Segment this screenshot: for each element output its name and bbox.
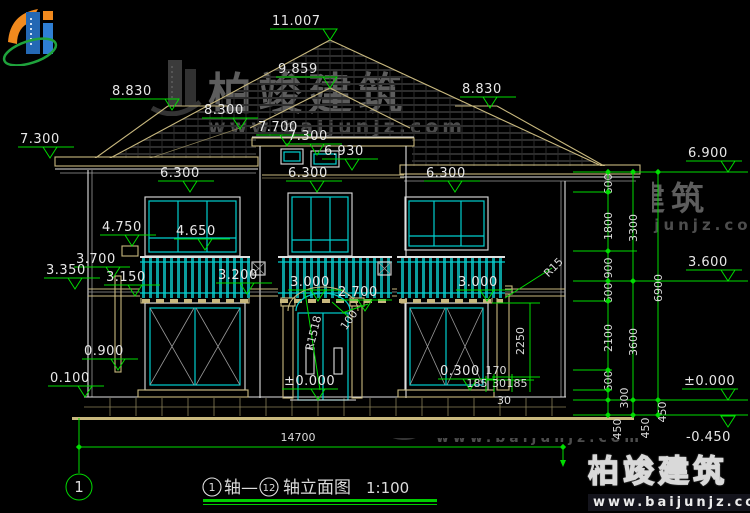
elevation-marker: 11.007 <box>270 14 337 40</box>
dimension-value: 300 <box>618 388 631 409</box>
elevation-value: 7.300 <box>288 129 328 144</box>
dimension-value: 185 <box>507 377 528 390</box>
ground-line <box>72 417 634 420</box>
elevation-value: 3.000 <box>290 275 330 290</box>
dimension-value: 3600 <box>627 328 640 356</box>
cad-elevation-canvas: 柏竣建筑 www.baijunjz.com 柏竣建筑 www.baijunjz.… <box>0 0 750 513</box>
dimension-value: 30 <box>497 394 511 407</box>
title-underline-2 <box>203 504 437 505</box>
elevation-value: 6.300 <box>288 166 328 181</box>
elevation-value: 6.930 <box>324 144 364 159</box>
dimension-value: 185 <box>467 377 488 390</box>
elevation-value: 8.830 <box>462 82 502 97</box>
elevation-marker: 7.300 <box>18 132 74 158</box>
elevation-marker: 3.600 <box>686 255 742 281</box>
elevation-value: 0.900 <box>84 344 124 359</box>
title-mid: 轴— <box>224 478 258 498</box>
dimension-value: 900 <box>602 258 615 279</box>
elevation-marker: ±0.000 <box>682 374 738 400</box>
dimension-value: 3300 <box>627 214 640 242</box>
elevation-value: 3.350 <box>46 263 86 278</box>
title-scale: 1:100 <box>366 479 409 497</box>
elevation-value: ±0.000 <box>684 374 735 389</box>
dimension-value: 2250 <box>514 327 527 355</box>
dimension-value: 6900 <box>652 274 665 302</box>
elevation-value: 0.100 <box>50 371 90 386</box>
title-axis-start: 1 <box>209 481 216 494</box>
elevation-value: 7.300 <box>20 132 60 147</box>
dimension-value: 450 <box>639 418 652 439</box>
title-main: 轴立面图 <box>283 478 351 498</box>
elevation-value: 4.750 <box>102 220 142 235</box>
title-axis-end: 12 <box>263 483 276 494</box>
elevation-value: ±0.000 <box>284 374 335 389</box>
elevation-value: 3.000 <box>458 275 498 290</box>
elevation-value: 8.830 <box>112 84 152 99</box>
elevation-value: 2.700 <box>338 285 378 300</box>
title-underline <box>203 499 437 502</box>
dimension-value: 170 <box>486 364 507 377</box>
elevation-value: 4.650 <box>176 224 216 239</box>
dimension-value: 30 <box>492 377 506 390</box>
elevation-value: -0.450 <box>686 430 731 445</box>
dimension-value: 1800 <box>602 212 615 240</box>
dimension-value: 14700 <box>281 431 316 444</box>
elevation-value: 6.300 <box>160 166 200 181</box>
dimension-value: 2100 <box>602 324 615 352</box>
elevation-value: 3.200 <box>218 268 258 283</box>
elevation-value: 6.300 <box>426 166 466 181</box>
elevation-value: 9.859 <box>278 62 318 77</box>
elevation-value: 11.007 <box>272 14 321 29</box>
elevation-marker: 6.900 <box>686 146 742 172</box>
axis-bubble-label: 1 <box>74 478 84 496</box>
dimension-value: 450 <box>611 419 624 440</box>
company-logo-icon <box>0 0 62 66</box>
dim-tick <box>655 169 661 175</box>
elevation-value: 6.900 <box>688 146 728 161</box>
elevation-marker: -0.450 <box>686 416 735 445</box>
elevation-value: 3.150 <box>106 270 146 285</box>
title-block: 1 轴— 12 轴立面图 1:100 <box>203 478 437 505</box>
company-logo-text: 柏竣建筑 www.baijunjz.com <box>588 446 750 511</box>
elevation-value: 8.300 <box>204 103 244 118</box>
elevation-drawing: 1 1 轴— 12 轴立面图 1:100 11.0079.8598.8308.8… <box>0 0 750 513</box>
elevation-value: 3.600 <box>688 255 728 270</box>
